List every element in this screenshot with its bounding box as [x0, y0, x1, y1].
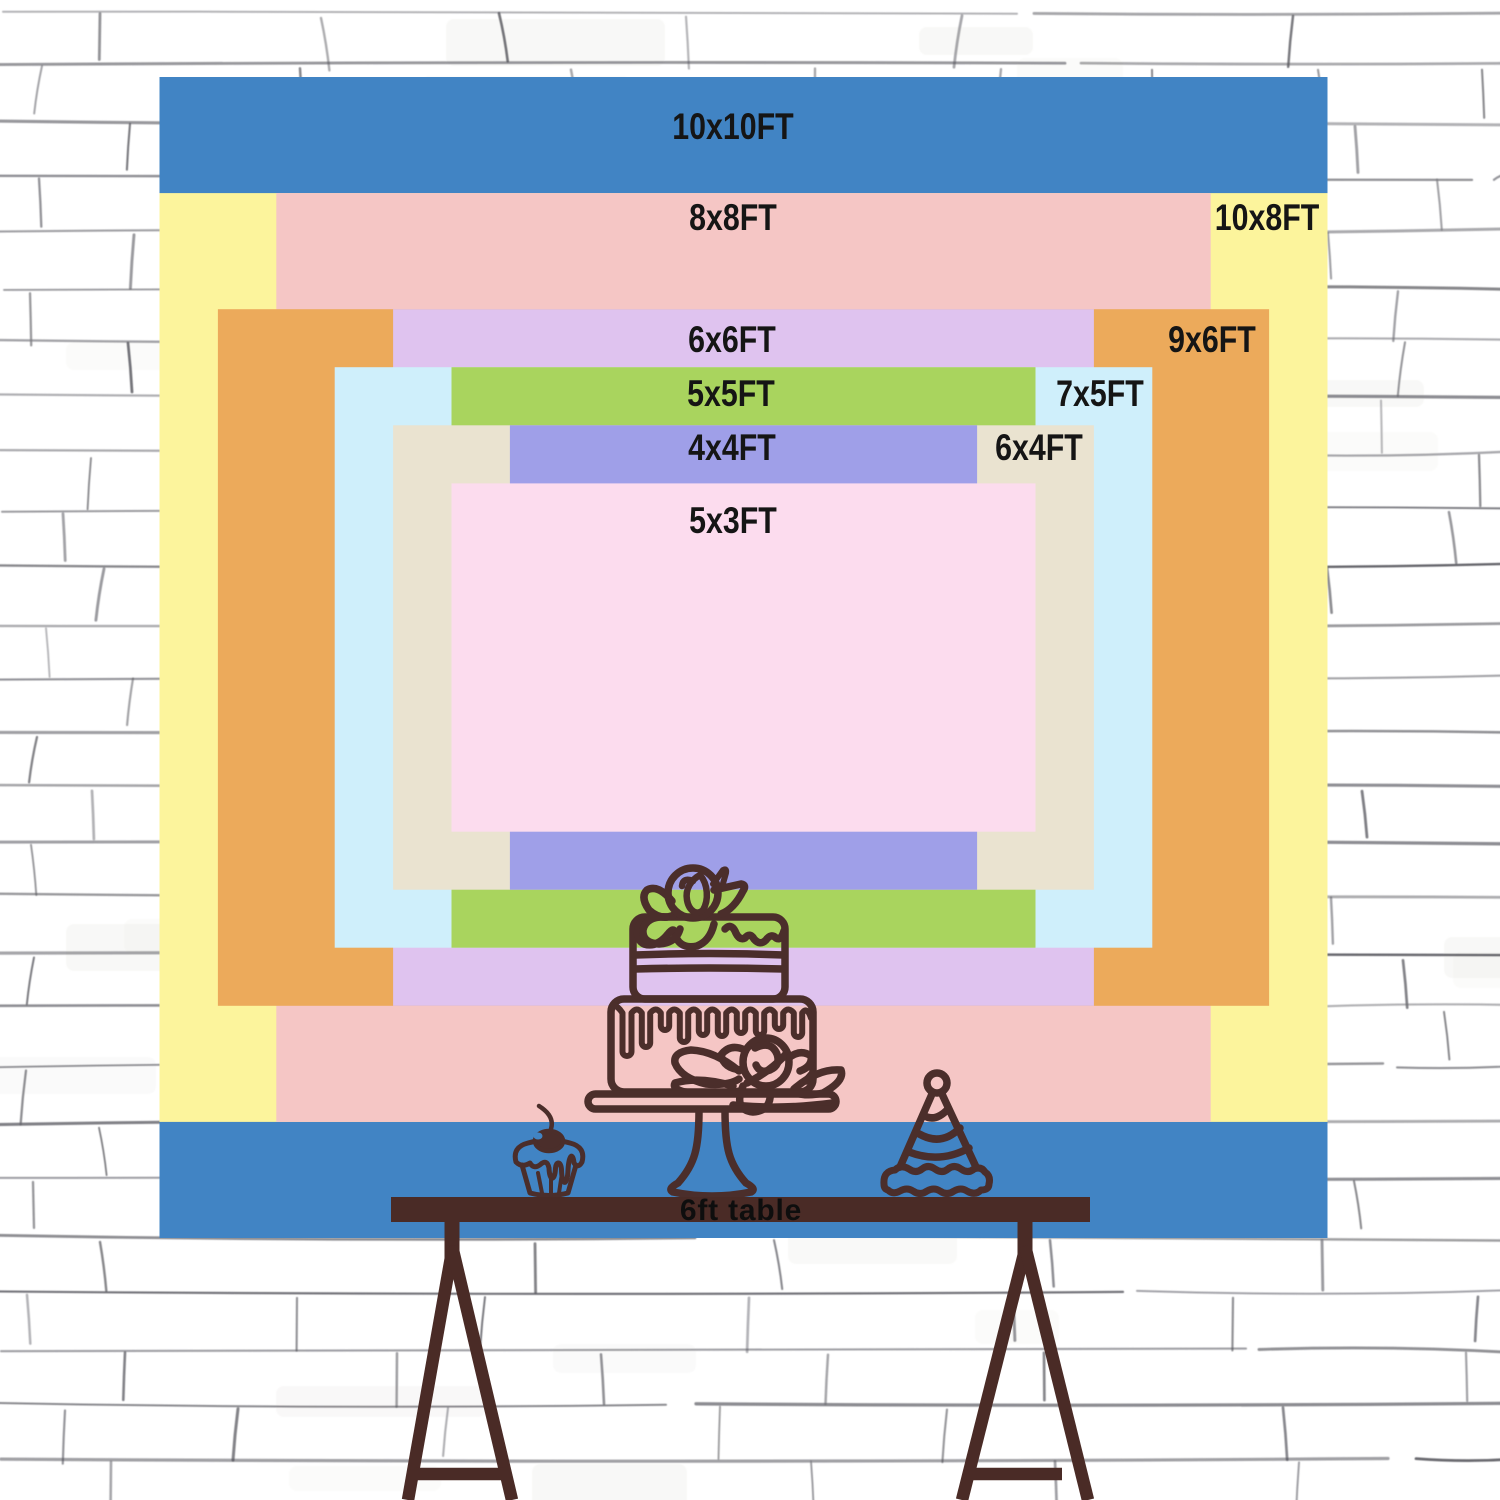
svg-text:4x4FT: 4x4FT: [688, 427, 776, 469]
svg-text:5x3FT: 5x3FT: [689, 500, 777, 542]
svg-text:7x5FT: 7x5FT: [1056, 373, 1144, 415]
svg-text:9x6FT: 9x6FT: [1168, 319, 1256, 361]
svg-text:6x6FT: 6x6FT: [688, 319, 776, 361]
svg-text:8x8FT: 8x8FT: [689, 197, 777, 239]
svg-text:5x5FT: 5x5FT: [687, 373, 775, 415]
svg-text:10x10FT: 10x10FT: [672, 106, 794, 148]
svg-text:10x8FT: 10x8FT: [1215, 197, 1320, 239]
svg-text:6ft table: 6ft table: [680, 1194, 802, 1227]
svg-text:6x4FT: 6x4FT: [995, 427, 1083, 469]
